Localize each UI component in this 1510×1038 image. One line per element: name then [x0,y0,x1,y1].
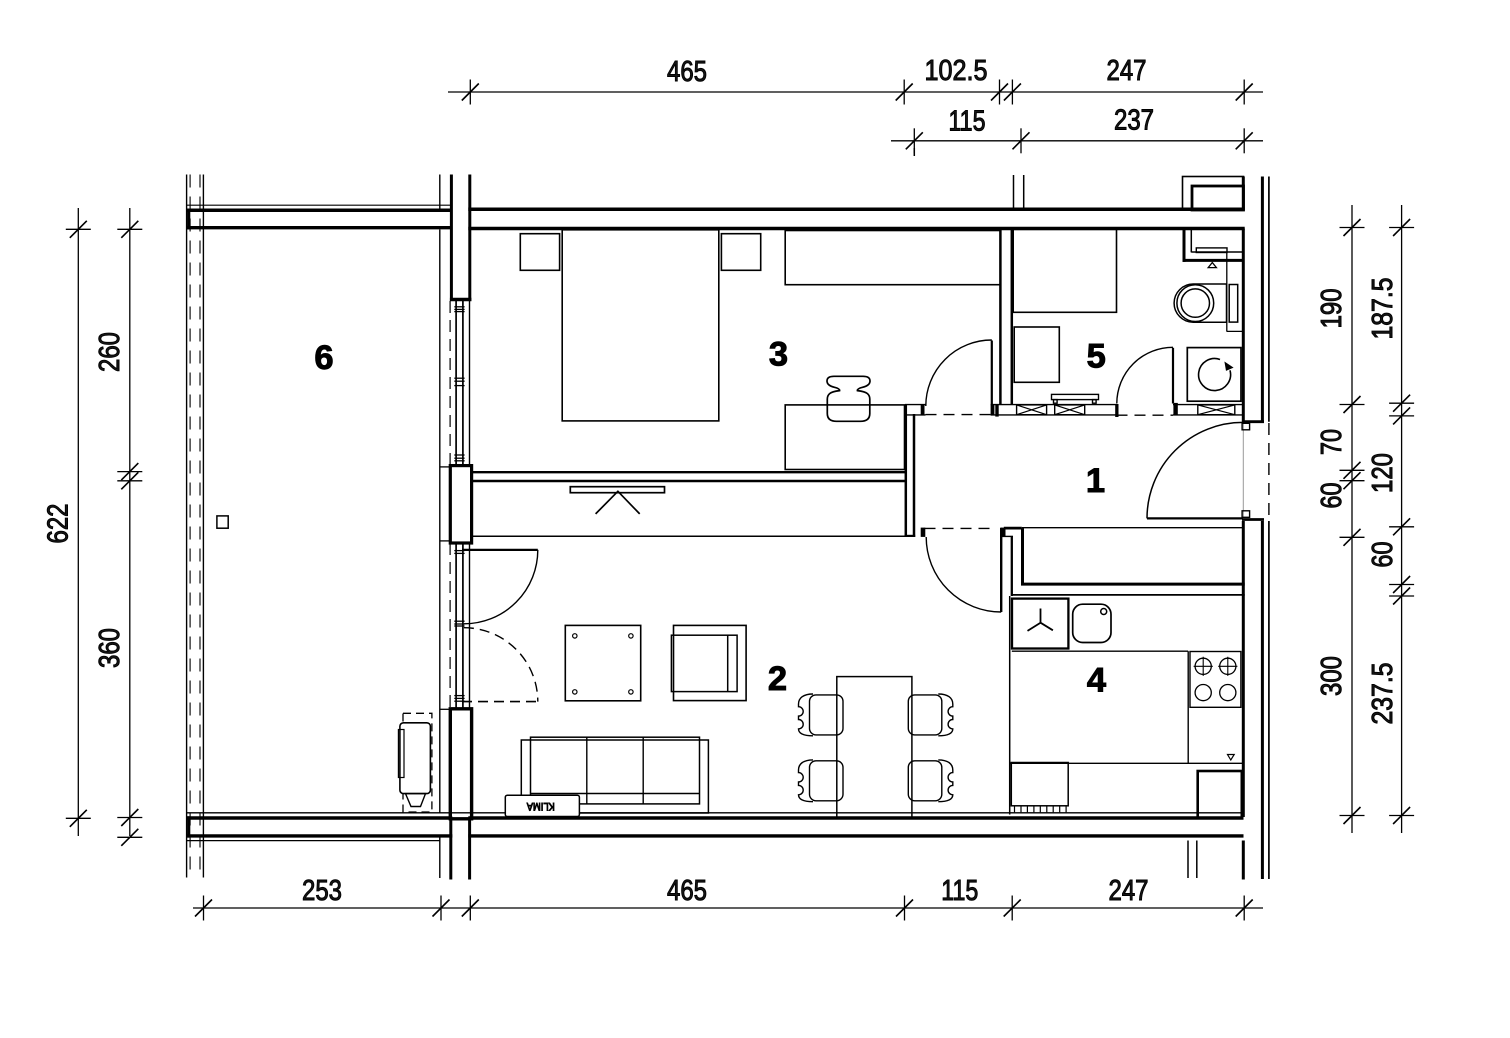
svg-text:247: 247 [1107,55,1147,87]
svg-text:120: 120 [1367,453,1399,493]
svg-text:6: 6 [314,339,333,377]
svg-text:60: 60 [1316,483,1348,509]
svg-text:60: 60 [1367,542,1399,568]
svg-text:187.5: 187.5 [1367,278,1399,340]
svg-text:2: 2 [768,660,787,698]
svg-text:260: 260 [94,332,126,372]
svg-text:102.5: 102.5 [925,55,988,87]
svg-text:465: 465 [667,875,707,907]
svg-text:253: 253 [302,875,342,907]
svg-text:360: 360 [94,628,126,668]
svg-text:115: 115 [941,875,978,907]
svg-text:5: 5 [1087,338,1106,376]
svg-text:KLIMA: KLIMA [526,800,555,812]
svg-text:3: 3 [769,335,788,373]
svg-text:622: 622 [43,504,75,544]
svg-text:237: 237 [1114,105,1154,137]
svg-text:1: 1 [1086,462,1105,500]
svg-text:300: 300 [1316,656,1348,696]
svg-text:115: 115 [949,106,986,138]
svg-text:465: 465 [667,56,707,88]
svg-text:237.5: 237.5 [1367,663,1399,725]
svg-text:70: 70 [1316,429,1348,455]
svg-text:247: 247 [1109,875,1149,907]
svg-text:190: 190 [1316,288,1348,328]
svg-text:4: 4 [1087,662,1106,700]
